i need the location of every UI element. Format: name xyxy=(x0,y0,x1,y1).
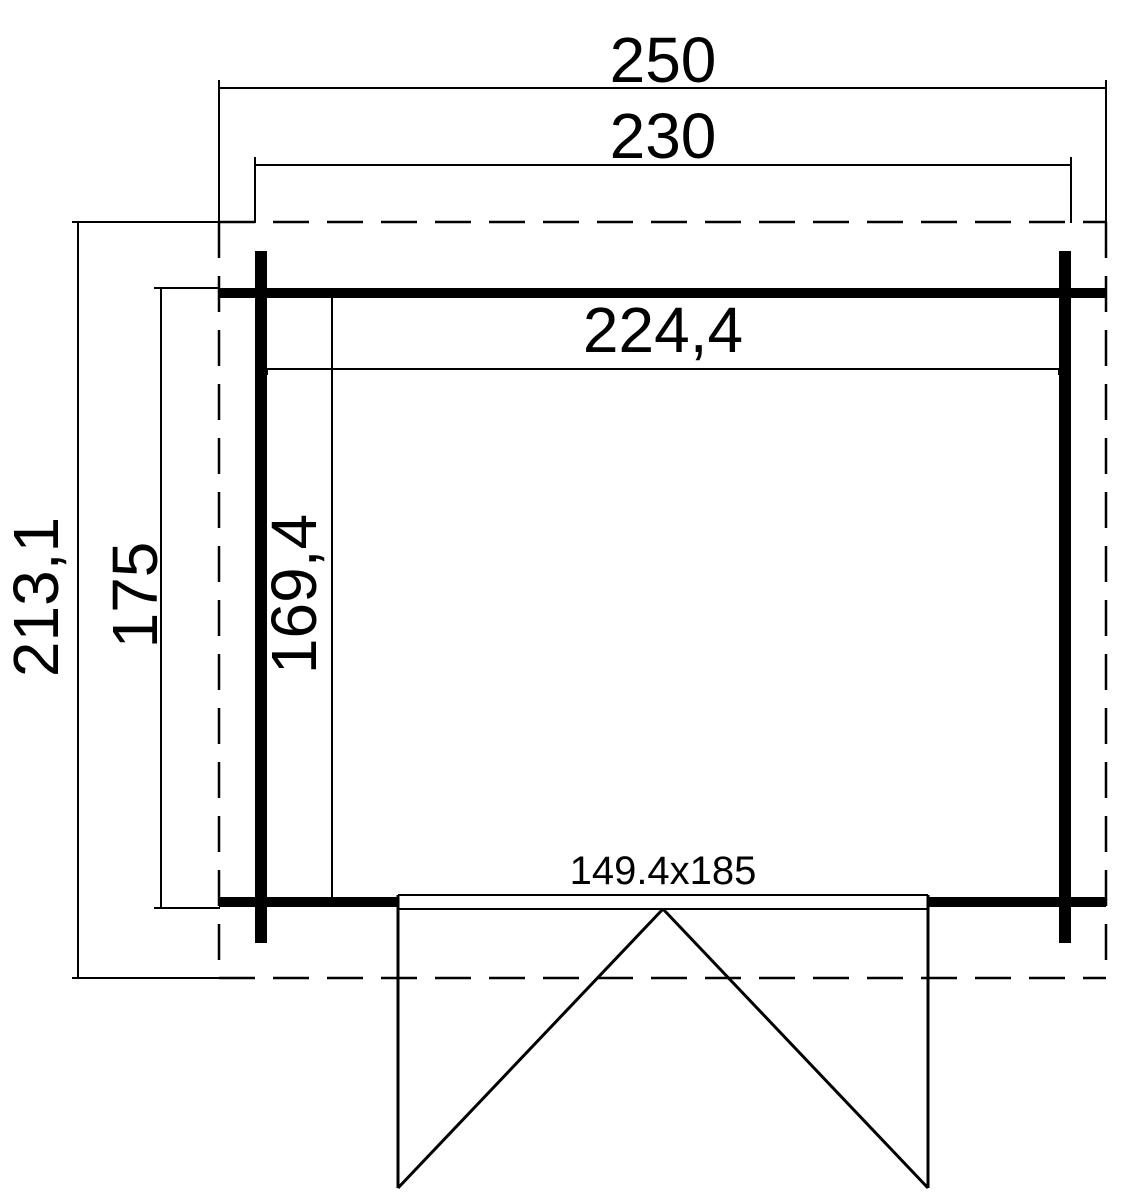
wall-front-left xyxy=(219,897,398,907)
double-door xyxy=(398,895,928,1188)
door-swing-right xyxy=(663,909,928,1188)
floor-plan-canvas: 250 230 213,1 175 224,4 xyxy=(0,0,1132,1200)
wall-right-log xyxy=(1059,251,1071,943)
dim-interior-depth-label: 169,4 xyxy=(258,514,330,674)
door-swing-left xyxy=(398,909,663,1188)
floor-plan-drawing: 250 230 213,1 175 224,4 xyxy=(0,0,1132,1200)
wall-front-right xyxy=(928,897,1106,907)
dim-outer-wall-width-label: 230 xyxy=(610,100,717,172)
dim-outer-wall-depth-label: 175 xyxy=(99,542,171,649)
dim-interior-width-label: 224,4 xyxy=(583,294,743,366)
dimension-interior-width xyxy=(267,369,1059,375)
dim-overall-width-label: 250 xyxy=(610,24,717,96)
door-size-label: 149.4x185 xyxy=(570,849,757,893)
dim-overall-depth-label: 213,1 xyxy=(0,517,72,677)
